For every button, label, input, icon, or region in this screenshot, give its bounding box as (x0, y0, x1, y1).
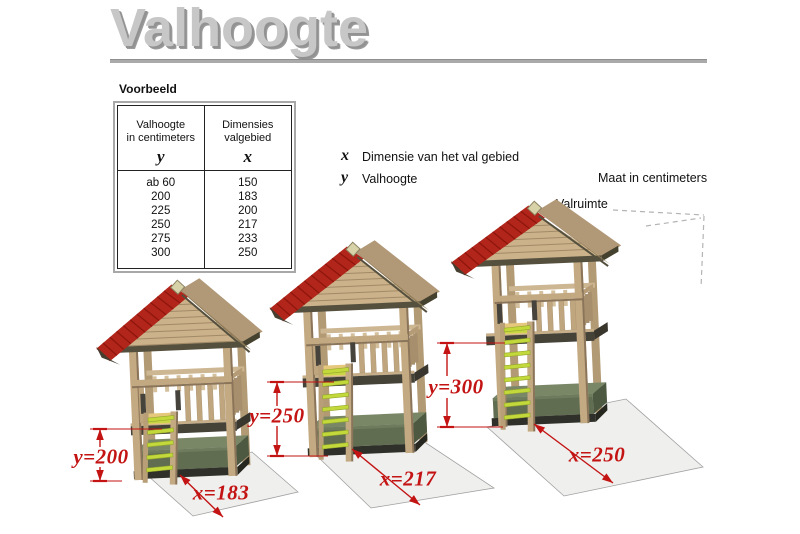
dimension-label-x-1: x=183 (193, 481, 249, 506)
dimension-label-x-2: x=217 (380, 467, 436, 492)
dimension-label-x-3: x=250 (569, 443, 625, 468)
dimension-label-y-2: y=250 (249, 404, 304, 429)
playhouse-illustration-2 (267, 237, 447, 464)
page: Valhoogte Voorbeeld Valhoogte in centime… (0, 0, 800, 534)
dimension-label-y-1: y=200 (73, 445, 128, 470)
dimension-label-y-3: y=300 (428, 375, 483, 400)
fall-space-dashed-lines (613, 210, 704, 288)
